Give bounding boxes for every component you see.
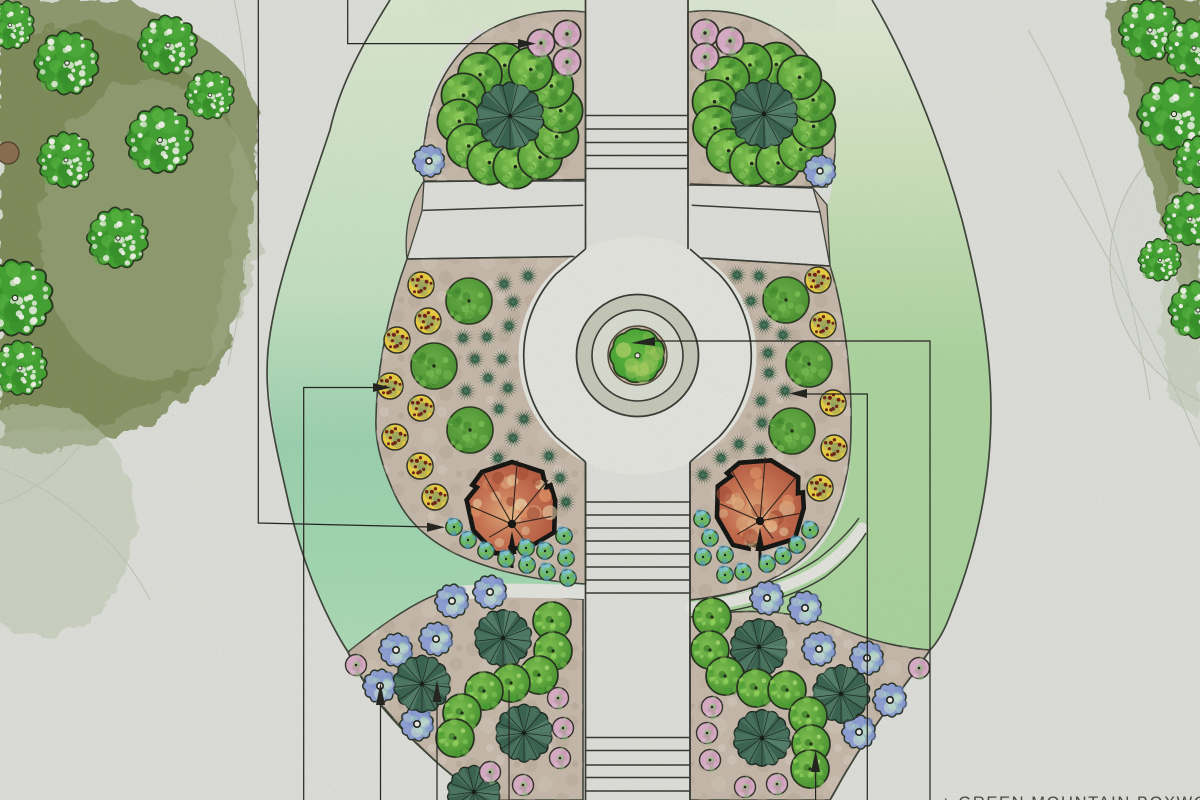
svg-text:+ GREEN MOUNTAIN BOXWOOD: + GREEN MOUNTAIN BOXWOOD <box>941 794 1200 800</box>
